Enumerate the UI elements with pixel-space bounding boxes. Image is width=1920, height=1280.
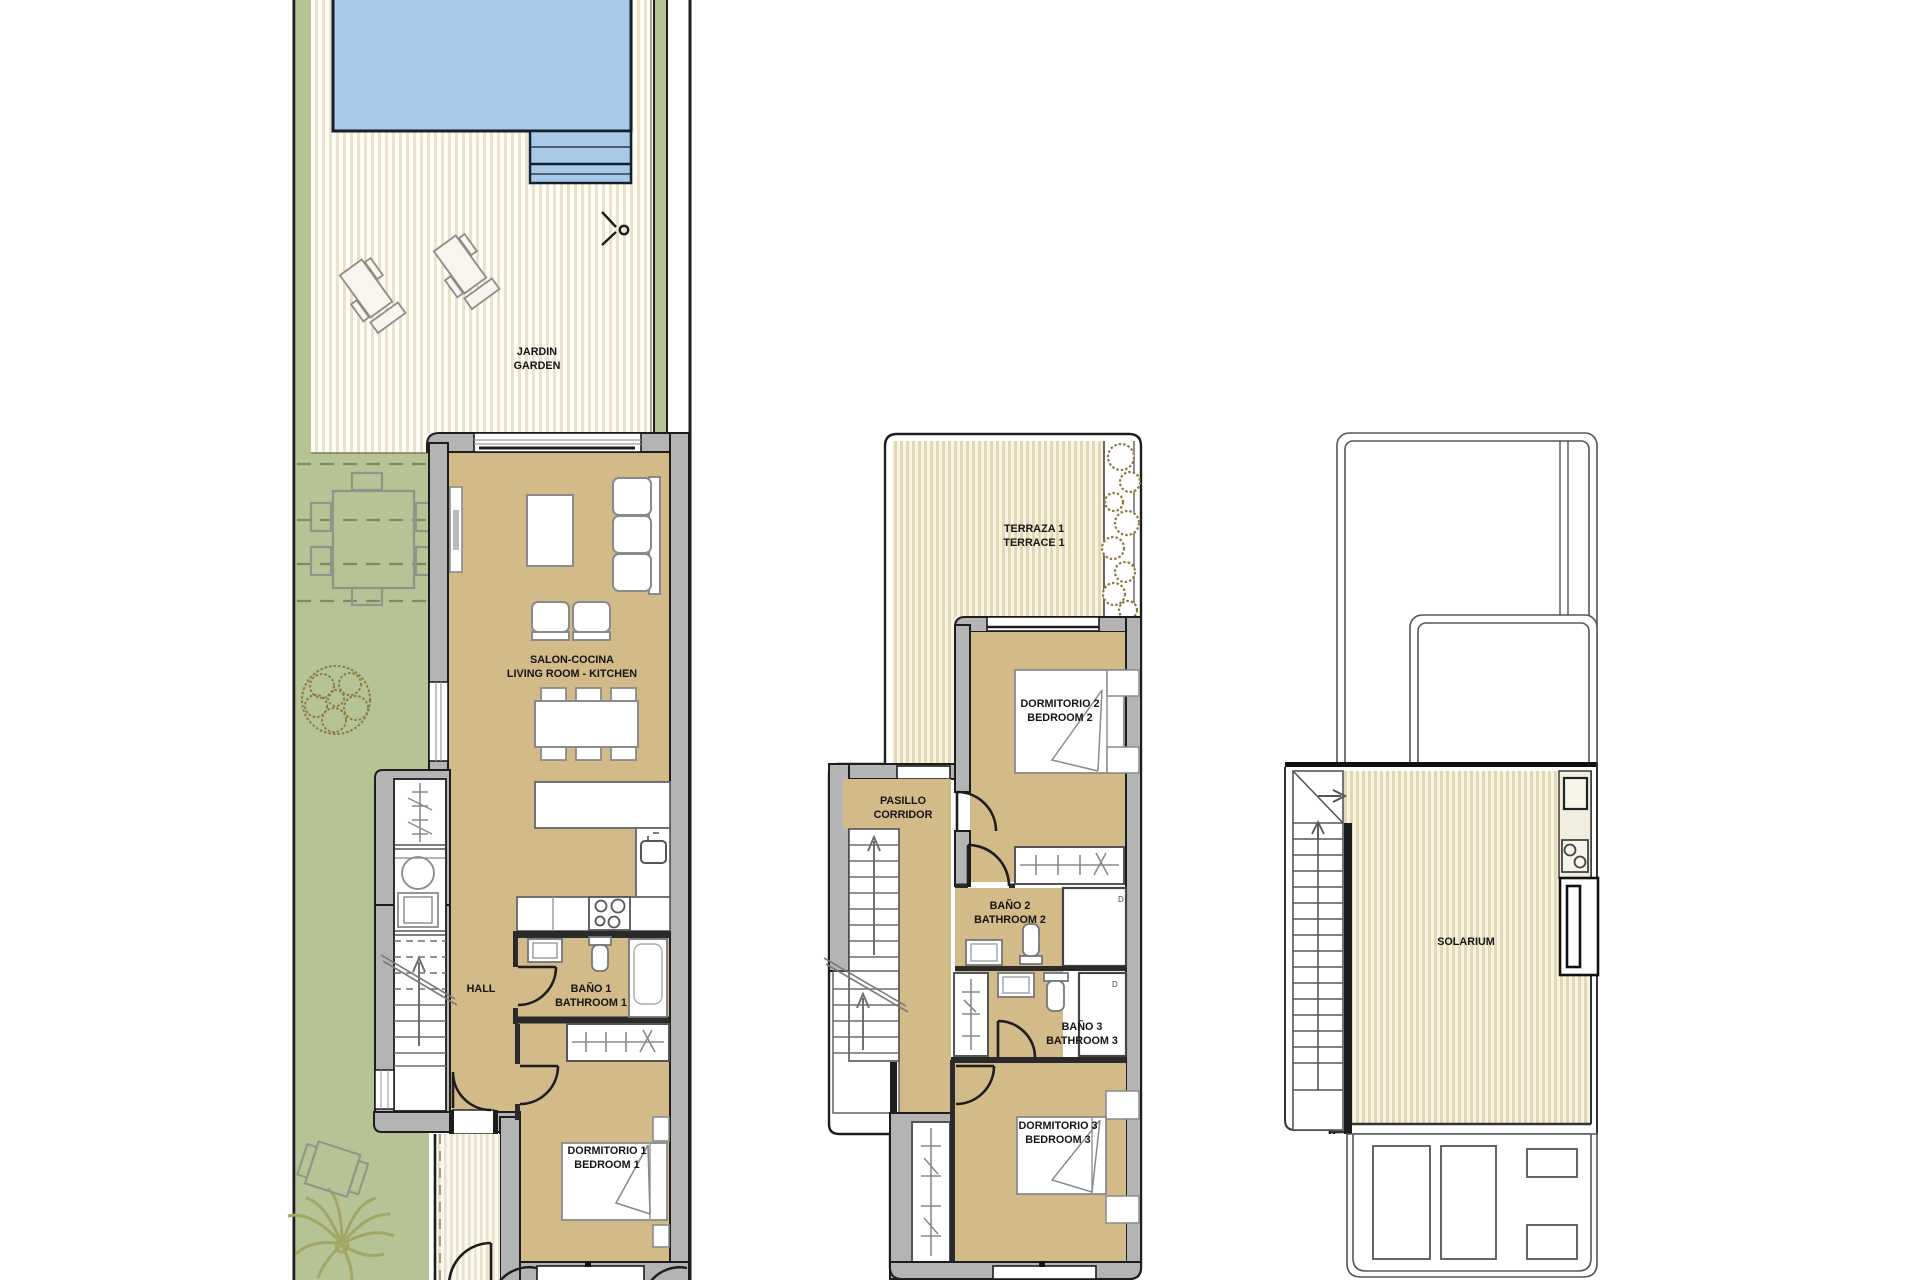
svg-text:SOLARIUM: SOLARIUM <box>1437 936 1495 948</box>
svg-text:BEDROOM 1: BEDROOM 1 <box>574 1159 639 1171</box>
svg-text:DORMITORIO 1: DORMITORIO 1 <box>568 1145 647 1157</box>
svg-text:PASILLO: PASILLO <box>880 795 926 807</box>
svg-text:DORMITORIO 2: DORMITORIO 2 <box>1021 698 1100 710</box>
svg-text:BATHROOM 1: BATHROOM 1 <box>555 997 627 1009</box>
svg-text:CORRIDOR: CORRIDOR <box>874 809 933 821</box>
svg-text:BAÑO 1: BAÑO 1 <box>571 982 612 995</box>
svg-text:DORMITORIO 3: DORMITORIO 3 <box>1019 1120 1098 1132</box>
svg-text:D: D <box>1118 895 1124 904</box>
svg-text:JARDIN: JARDIN <box>517 346 557 358</box>
svg-text:BEDROOM 3: BEDROOM 3 <box>1025 1134 1090 1146</box>
svg-text:BEDROOM 2: BEDROOM 2 <box>1027 712 1092 724</box>
svg-text:BAÑO 3: BAÑO 3 <box>1062 1020 1103 1033</box>
svg-text:BAÑO 2: BAÑO 2 <box>990 899 1031 912</box>
svg-text:TERRAZA 1: TERRAZA 1 <box>1004 523 1064 535</box>
svg-text:HALL: HALL <box>467 983 496 995</box>
svg-text:TERRACE 1: TERRACE 1 <box>1003 537 1064 549</box>
svg-text:GARDEN: GARDEN <box>514 360 561 372</box>
svg-text:SALON-COCINA: SALON-COCINA <box>530 654 614 666</box>
svg-text:D: D <box>1112 980 1118 989</box>
svg-text:BATHROOM 3: BATHROOM 3 <box>1046 1035 1118 1047</box>
svg-text:LIVING ROOM - KITCHEN: LIVING ROOM - KITCHEN <box>507 668 637 680</box>
